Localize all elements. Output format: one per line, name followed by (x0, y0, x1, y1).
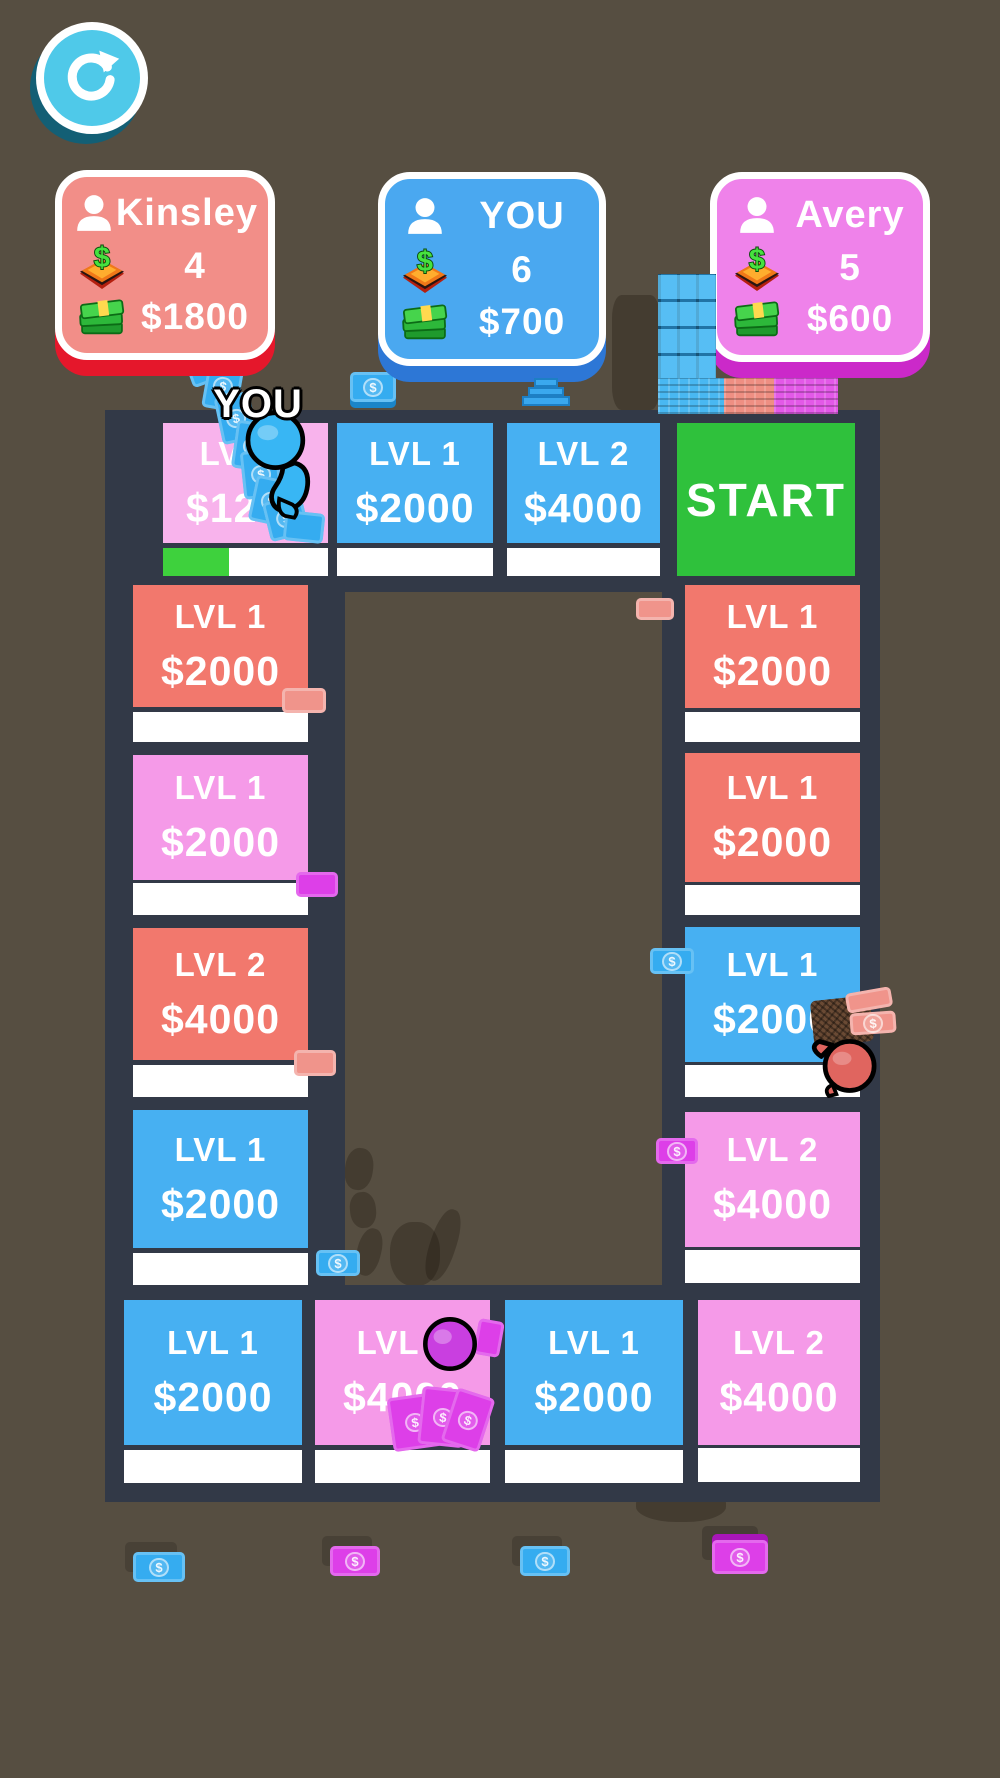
tile-price-label: $2000 (713, 819, 832, 866)
player-properties-row: $ 5 (727, 244, 913, 292)
player-cash: $600 (787, 298, 913, 340)
pawn-you-label: YOU (188, 382, 328, 427)
ground-shadow (348, 1191, 378, 1230)
pawn-avery (418, 1312, 482, 1381)
tile-level-label: LVL 1 (369, 435, 461, 473)
money-stack-icon (658, 378, 724, 414)
money-stack-icon (724, 378, 774, 414)
tile-price-label: $2000 (534, 1374, 653, 1421)
game-screen: { "hud": { "restart_button": { "icon": "… (0, 0, 1000, 1778)
money-bill-icon (520, 1546, 570, 1576)
tile-price-label: $2000 (161, 819, 280, 866)
cash-icon (72, 298, 132, 336)
board-tile-top-3: LVL 2 $4000 (507, 423, 660, 543)
pawn-you (230, 408, 334, 536)
svg-text:$: $ (94, 242, 110, 274)
tile-progress-bar (133, 1253, 308, 1285)
tile-price-label: $4000 (719, 1374, 838, 1421)
board-tile-left-1: LVL 1 $2000 (133, 585, 308, 707)
tile-level-label: LVL 1 (167, 1324, 259, 1362)
tile-price-label: $2000 (153, 1374, 272, 1421)
board-tile-top-2: LVL 1 $2000 (337, 423, 493, 543)
money-bill-icon (296, 872, 338, 897)
tile-level-label: LVL 1 (727, 946, 819, 984)
player-name: Avery (787, 194, 913, 237)
money-stack-icon (528, 387, 564, 396)
tile-progress-bar (505, 1450, 683, 1483)
money-bill-icon (636, 598, 674, 620)
restart-icon (63, 47, 121, 110)
tile-price-label: $2000 (161, 1181, 280, 1228)
tile-price-label: $4000 (161, 996, 280, 1043)
player-properties-count: 5 (787, 247, 913, 289)
tile-level-label: LVL 1 (175, 1131, 267, 1169)
pawn-kinsley (800, 1032, 886, 1103)
ground-shadow (612, 295, 660, 410)
tile-progress-bar (337, 548, 493, 576)
player-properties-row: $ 4 (72, 242, 258, 290)
start-label: START (686, 473, 846, 527)
tile-level-label: LVL 1 (175, 598, 267, 636)
player-cash: $1800 (132, 296, 258, 338)
money-bill-icon (330, 1546, 380, 1576)
player-properties-count: 6 (455, 249, 589, 291)
tile-level-label: LVL 2 (733, 1324, 825, 1362)
tile-price-label: $4000 (713, 1181, 832, 1228)
tile-price-label: $4000 (524, 485, 643, 532)
tile-price-label: $2000 (713, 648, 832, 695)
player-name: YOU (455, 195, 589, 238)
restart-button[interactable] (36, 22, 148, 134)
money-bill-icon (350, 372, 396, 402)
person-icon (727, 196, 787, 234)
tile-price-label: $2000 (355, 485, 474, 532)
board-tile-right-4: LVL 2 $4000 (685, 1112, 860, 1247)
tile-progress-bar (698, 1448, 860, 1482)
player-name-row: Kinsley (72, 192, 258, 235)
tile-progress-bar (124, 1450, 302, 1483)
tile-progress-bar (685, 885, 860, 915)
player-cash-row: $700 (395, 301, 589, 343)
tile-level-label: LVL 1 (727, 769, 819, 807)
tile-progress-bar (685, 1250, 860, 1283)
money-bill-icon (316, 1250, 360, 1276)
money-bill-icon (650, 948, 694, 974)
tile-level-label: LVL 1 (175, 769, 267, 807)
player-name: Kinsley (116, 192, 258, 235)
player-card-kinsley: Kinsley $ 4 $1800 (55, 170, 275, 360)
player-cash-row: $600 (727, 298, 913, 340)
tile-level-label: LVL 2 (727, 1131, 819, 1169)
cash-icon (395, 303, 455, 341)
player-card-you: YOU $ 6 $700 (378, 172, 606, 366)
board-tile-start: START (677, 423, 855, 576)
board-tile-left-3: LVL 2 $4000 (133, 928, 308, 1060)
property-pad-icon: $ (727, 244, 787, 292)
player-cash-row: $1800 (72, 296, 258, 338)
tile-progress-bar (163, 548, 328, 576)
tile-progress-bar (685, 712, 860, 742)
money-stack-icon (534, 378, 558, 387)
tile-level-label: LVL 1 (727, 598, 819, 636)
svg-text:$: $ (417, 246, 433, 278)
player-properties-count: 4 (132, 245, 258, 287)
player-name-row: Avery (727, 194, 913, 237)
board-tile-bottom-3: LVL 1 $2000 (505, 1300, 683, 1445)
tile-progress-bar (133, 1065, 308, 1097)
board-tile-right-2: LVL 1 $2000 (685, 753, 860, 882)
property-pad-icon: $ (72, 242, 132, 290)
tile-progress-bar (133, 883, 308, 915)
money-stack-icon (522, 396, 570, 406)
person-icon (72, 194, 116, 232)
player-card-avery: Avery $ 5 $600 (710, 172, 930, 362)
money-bill-icon (294, 1050, 336, 1076)
property-pad-icon: $ (395, 246, 455, 294)
tile-progress-bar (315, 1450, 490, 1483)
svg-text:$: $ (749, 244, 765, 276)
tile-progress-fill (163, 548, 229, 576)
tile-level-label: LVL 2 (175, 946, 267, 984)
cash-icon (727, 300, 787, 338)
player-properties-row: $ 6 (395, 246, 589, 294)
money-bill-icon (282, 688, 326, 713)
tile-progress-bar (507, 548, 660, 576)
tile-level-label: LVL 1 (548, 1324, 640, 1362)
board-tile-right-1: LVL 1 $2000 (685, 585, 860, 708)
board-tile-left-4: LVL 1 $2000 (133, 1110, 308, 1248)
tile-level-label: LVL 2 (538, 435, 630, 473)
tile-progress-bar (133, 712, 308, 742)
tile-price-label: $2000 (161, 648, 280, 695)
board-tile-left-2: LVL 1 $2000 (133, 755, 308, 880)
ground-shadow (342, 1146, 376, 1191)
money-bill-icon (712, 1540, 768, 1574)
player-cash: $700 (455, 301, 589, 343)
board-tile-bottom-1: LVL 1 $2000 (124, 1300, 302, 1445)
money-bill-icon (133, 1552, 185, 1582)
money-stack-icon (774, 378, 838, 414)
money-bill-icon (656, 1138, 698, 1164)
board-tile-bottom-4: LVL 2 $4000 (698, 1300, 860, 1445)
player-name-row: YOU (395, 195, 589, 238)
person-icon (395, 197, 455, 235)
